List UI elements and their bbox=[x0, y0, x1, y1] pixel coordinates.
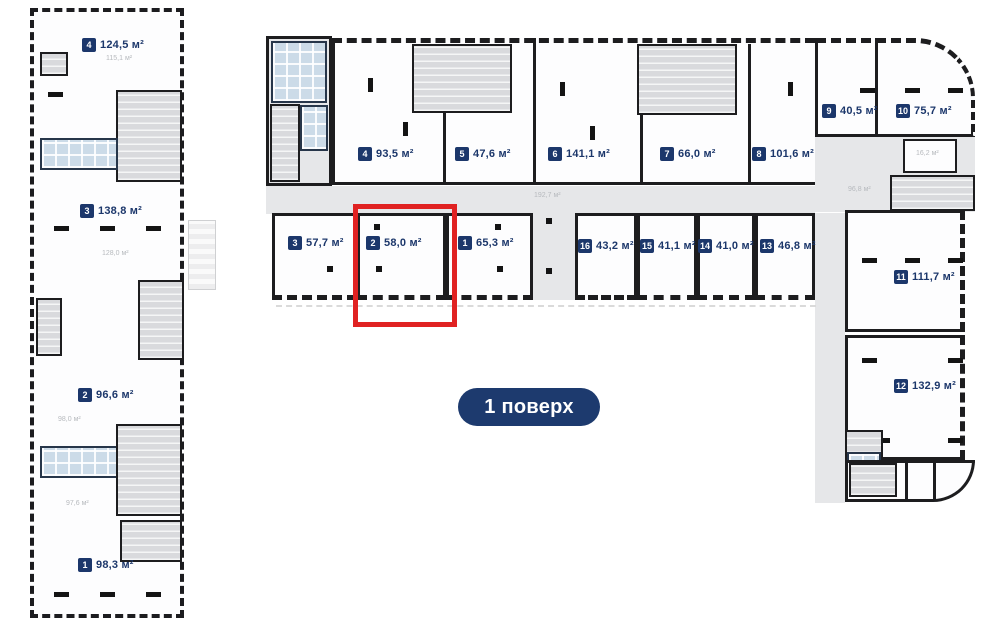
unit-area-text: 93,5 м² bbox=[376, 148, 414, 160]
unit-label-bottom-13[interactable]: 13 46,8 м² bbox=[760, 239, 816, 253]
unit-label-main-7[interactable]: 7 66,0 м² bbox=[660, 147, 716, 161]
unit-area-text: 41,0 м² bbox=[716, 240, 754, 252]
unit-area-text: 47,6 м² bbox=[473, 148, 511, 160]
unit-area-text: 98,3 м² bbox=[96, 559, 134, 571]
wall-pier bbox=[146, 226, 161, 231]
wall-pier bbox=[146, 592, 161, 597]
unit-label-left-2[interactable]: 2 96,6 м² bbox=[78, 388, 134, 402]
wall-pier bbox=[54, 226, 69, 231]
unit-number-badge: 7 bbox=[660, 147, 674, 161]
room-bottom-3[interactable] bbox=[272, 213, 357, 300]
main-corridor bbox=[266, 186, 815, 214]
unit-area-text: 75,7 м² bbox=[914, 105, 952, 117]
unit-subarea-text: 115,1 м² bbox=[106, 55, 132, 62]
unit-number-badge: 11 bbox=[894, 270, 908, 284]
left-stairs-lower bbox=[120, 520, 182, 562]
wall-pier bbox=[905, 258, 920, 263]
column-dot bbox=[497, 266, 503, 272]
unit-area-text: 43,2 м² bbox=[596, 240, 634, 252]
left-room-gray-mid bbox=[36, 298, 62, 356]
unit-area-text: 40,5 м² bbox=[840, 105, 878, 117]
partition-wall bbox=[533, 38, 536, 185]
unit-label-main-5[interactable]: 5 47,6 м² bbox=[455, 147, 511, 161]
room-area-text: 16,2 м² bbox=[916, 150, 939, 157]
unit-number-badge: 9 bbox=[822, 104, 836, 118]
unit-area-text: 111,7 м² bbox=[912, 271, 955, 283]
unit-label-left-3[interactable]: 3 138,8 м² bbox=[80, 204, 142, 218]
unit-label-bottom-15[interactable]: 15 41,1 м² bbox=[640, 239, 696, 253]
left-stair-core-bottom bbox=[116, 424, 182, 516]
unit-label-main-9[interactable]: 9 40,5 м² bbox=[822, 104, 878, 118]
unit-area-text: 66,0 м² bbox=[678, 148, 716, 160]
unit-area-text: 141,1 м² bbox=[566, 148, 610, 160]
wall-pier bbox=[860, 88, 875, 93]
unit-number-badge: 15 bbox=[640, 239, 654, 253]
partition-wall bbox=[875, 38, 878, 137]
unit-subarea-text: 128,0 м² bbox=[102, 250, 129, 257]
unit-subarea-text: 97,6 м² bbox=[66, 500, 89, 507]
left-bathroom-pods-top bbox=[40, 138, 118, 170]
unit-area-text: 132,9 м² bbox=[912, 380, 956, 392]
unit-number-badge: 1 bbox=[458, 236, 472, 250]
room-bottom-14[interactable] bbox=[697, 213, 755, 300]
column-dot bbox=[546, 268, 552, 274]
unit-number-badge: 3 bbox=[80, 204, 94, 218]
unit-number-badge: 5 bbox=[455, 147, 469, 161]
wall-pier bbox=[100, 226, 115, 231]
partition-wall bbox=[640, 115, 643, 185]
unit-subarea-text: 98,0 м² bbox=[58, 416, 81, 423]
unit-label-main-4[interactable]: 4 93,5 м² bbox=[358, 147, 414, 161]
wall-pier bbox=[905, 88, 920, 93]
partition-wall bbox=[933, 460, 936, 500]
stair-core-top-1 bbox=[412, 44, 512, 113]
unit-label-bottom-1[interactable]: 1 65,3 м² bbox=[458, 236, 514, 250]
annex-stair-core bbox=[270, 104, 300, 182]
unit-area-text: 124,5 м² bbox=[100, 39, 144, 51]
unit-label-bottom-14[interactable]: 14 41,0 м² bbox=[698, 239, 754, 253]
unit-label-right-12[interactable]: 12 132,9 м² bbox=[894, 379, 956, 393]
wall-pier bbox=[368, 78, 373, 92]
unit-area-text: 57,7 м² bbox=[306, 237, 344, 249]
unit-number-badge: 16 bbox=[578, 239, 592, 253]
room-bottom-1[interactable] bbox=[446, 213, 533, 300]
unit-number-badge: 4 bbox=[82, 38, 96, 52]
wall-pier bbox=[100, 592, 115, 597]
wall-pier bbox=[862, 358, 877, 363]
annex-bathroom-pods bbox=[271, 41, 327, 103]
unit-number-badge: 4 bbox=[358, 147, 372, 161]
right-corridor-strip bbox=[815, 213, 845, 503]
wall-pier bbox=[54, 592, 69, 597]
wall-pier bbox=[560, 82, 565, 96]
right-stair-core bbox=[890, 175, 975, 211]
unit-number-badge: 3 bbox=[288, 236, 302, 250]
stair-core-top-2 bbox=[637, 44, 737, 115]
partition-wall bbox=[905, 460, 908, 500]
wall-pier bbox=[948, 258, 963, 263]
floor-plan-canvas: 4 124,5 м² 115,1 м² 3 138,8 м² 128,0 м² … bbox=[0, 0, 1000, 628]
unit-number-badge: 6 bbox=[548, 147, 562, 161]
left-stair-core-top bbox=[116, 90, 182, 182]
wall-pier bbox=[403, 122, 408, 136]
corridor-area-text: 96,8 м² bbox=[848, 186, 871, 193]
unit-label-main-10[interactable]: 10 75,7 м² bbox=[896, 104, 952, 118]
partition-wall bbox=[443, 113, 446, 185]
unit-area-text: 41,1 м² bbox=[658, 240, 696, 252]
unit-label-main-6[interactable]: 6 141,1 м² bbox=[548, 147, 610, 161]
unit-number-badge: 12 bbox=[894, 379, 908, 393]
top-band-outline bbox=[332, 38, 815, 185]
unit-area-text: 101,6 м² bbox=[770, 148, 814, 160]
unit-area-text: 138,8 м² bbox=[98, 205, 142, 217]
corridor-area-text: 192,7 м² bbox=[534, 192, 561, 199]
unit-label-right-11[interactable]: 11 111,7 м² bbox=[894, 270, 955, 284]
column-dot bbox=[327, 266, 333, 272]
unit-label-bottom-3[interactable]: 3 57,7 м² bbox=[288, 236, 344, 250]
wall-pier bbox=[48, 92, 63, 97]
unit-label-left-1[interactable]: 1 98,3 м² bbox=[78, 558, 134, 572]
left-balcony bbox=[188, 220, 216, 290]
left-stair-core-mid bbox=[138, 280, 184, 360]
mid-corridor-strip bbox=[533, 213, 575, 300]
column-dot bbox=[546, 218, 552, 224]
unit-number-badge: 2 bbox=[78, 388, 92, 402]
left-room-gray-top bbox=[40, 52, 68, 76]
annex-bathroom-pods-small bbox=[300, 105, 328, 151]
unit-number-badge: 1 bbox=[78, 558, 92, 572]
wall-pier bbox=[590, 126, 595, 140]
room-bottom-13[interactable] bbox=[755, 213, 815, 300]
column-dot bbox=[495, 224, 501, 230]
unit-number-badge: 10 bbox=[896, 104, 910, 118]
unit-area-text: 65,3 м² bbox=[476, 237, 514, 249]
floor-selector-badge[interactable]: 1 поверх bbox=[458, 388, 600, 426]
wall-pier bbox=[788, 82, 793, 96]
bottom-right-stair bbox=[849, 463, 897, 497]
room-bottom-16[interactable] bbox=[575, 213, 637, 300]
wall-pier bbox=[948, 358, 963, 363]
wall-pier bbox=[862, 258, 877, 263]
unit-number-badge: 14 bbox=[698, 239, 712, 253]
wall-pier bbox=[948, 438, 963, 443]
room-bottom-15[interactable] bbox=[637, 213, 697, 300]
unit-area-text: 96,6 м² bbox=[96, 389, 134, 401]
left-bathroom-pods-bottom bbox=[40, 446, 118, 478]
unit-label-left-4[interactable]: 4 124,5 м² bbox=[82, 38, 144, 52]
unit-number-badge: 13 bbox=[760, 239, 774, 253]
unit-area-text: 46,8 м² bbox=[778, 240, 816, 252]
selected-unit-highlight bbox=[353, 204, 457, 327]
wall-pier bbox=[948, 88, 963, 93]
unit-label-bottom-16[interactable]: 16 43,2 м² bbox=[578, 239, 634, 253]
unit-number-badge: 8 bbox=[752, 147, 766, 161]
partition-wall bbox=[748, 44, 751, 185]
unit-label-main-8[interactable]: 8 101,6 м² bbox=[752, 147, 814, 161]
